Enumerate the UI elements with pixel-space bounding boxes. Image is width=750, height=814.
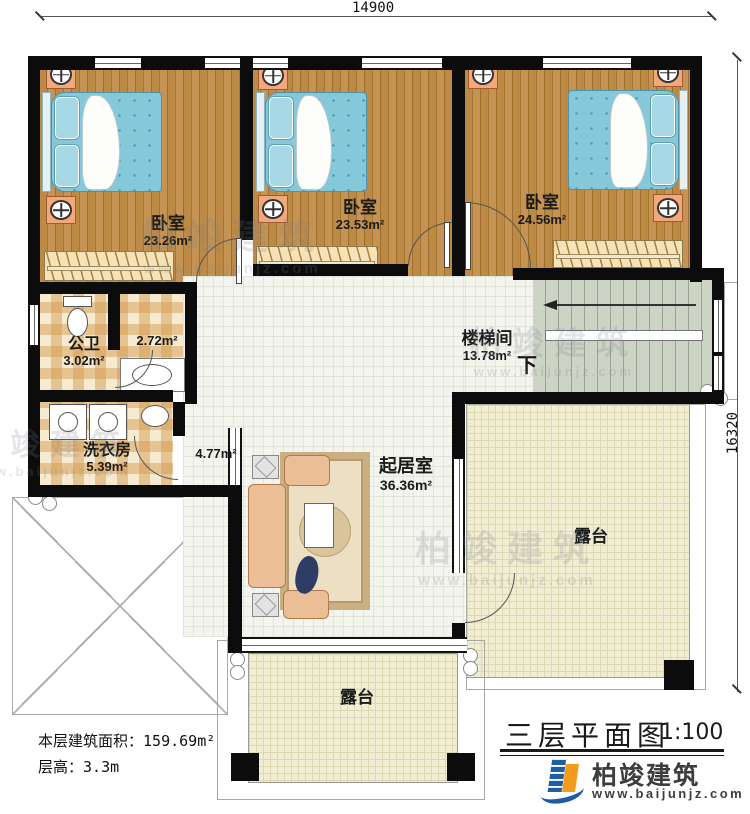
- small-room-label: 2.72m²: [136, 334, 177, 349]
- column-marker: [42, 496, 57, 511]
- right-wall: [690, 56, 702, 282]
- bedroom3-label: 卧室 24.56m²: [518, 193, 566, 227]
- top-dimension-line: [40, 16, 712, 17]
- laundry-label: 洗衣房 5.39m²: [83, 442, 131, 475]
- bed-pillow: [651, 143, 675, 185]
- floor-height-info: 层高：3.3m: [38, 756, 119, 777]
- bedroom2-bottom-wall: [253, 264, 408, 276]
- logo-swoosh: [538, 776, 586, 808]
- laundry-right-wall: [173, 402, 185, 436]
- stair-bay-bottom-wall: [452, 392, 724, 404]
- living-right-wall: [452, 404, 465, 459]
- toilet-tank: [63, 296, 92, 307]
- nightstand: [46, 196, 76, 224]
- living-right-wall-stub: [452, 623, 465, 637]
- bedroom2-label: 卧室 23.53m²: [336, 198, 384, 232]
- floor-area-info: 本层建筑面积：159.69m²: [38, 730, 215, 751]
- column: [231, 753, 259, 781]
- bed-pillow: [269, 97, 293, 139]
- drawing-title: 三层平面图: [505, 714, 670, 754]
- bedroom2-door-leaf: [444, 222, 450, 268]
- stair-window: [712, 356, 724, 390]
- right-terrace-outline: [466, 404, 706, 690]
- right-dimension-label: 16320: [725, 412, 741, 454]
- floor-plan: 14900 16320: [0, 0, 750, 814]
- stair-handrail: [545, 330, 703, 341]
- drawing-scale: 1:100: [660, 720, 723, 745]
- bed-pillow: [55, 145, 79, 187]
- laundry-top-wall: [40, 390, 173, 402]
- nightstand: [653, 194, 683, 222]
- wardrobe: [44, 251, 174, 281]
- bed-pillow: [651, 95, 675, 137]
- bedroom3-door-leaf: [465, 202, 471, 270]
- stair-top-wall: [513, 268, 724, 280]
- bed-headboard: [679, 90, 688, 190]
- column: [447, 753, 475, 781]
- right-dimension-line: [737, 60, 738, 692]
- laundry-sink-icon: [141, 405, 169, 427]
- corridor-label: 4.77m²: [195, 447, 236, 462]
- bed-pillow: [55, 97, 79, 139]
- column-marker: [463, 661, 478, 676]
- right-terrace-label: 露台: [574, 527, 608, 547]
- bed-headboard: [256, 92, 265, 192]
- bedroom2-window: [362, 56, 442, 70]
- floor-area-value: 159.69m²: [143, 732, 215, 750]
- stair-window: [712, 300, 724, 352]
- title-rule-thick: [500, 749, 724, 752]
- small-room-right-wall: [185, 294, 197, 404]
- lamp-icon: [50, 200, 72, 220]
- top-dimension-label: 14900: [352, 0, 394, 16]
- stair-direction-line: [556, 304, 696, 306]
- side-table: [252, 455, 279, 479]
- armchair: [283, 590, 329, 619]
- bedroom1-window: [205, 56, 240, 70]
- bathroom-label: 公卫 3.02m²: [63, 336, 104, 369]
- bedroom1-bottom-wall: [28, 282, 197, 294]
- stairwell-label: 楼梯间 13.78m²: [462, 329, 513, 363]
- bath-divider-wall: [108, 294, 120, 350]
- bedroom1-door-leaf: [236, 238, 242, 284]
- bedroom3-window: [543, 56, 631, 70]
- living-terrace-window: [452, 459, 465, 573]
- armchair: [284, 455, 330, 486]
- sofa: [248, 484, 286, 588]
- bed-pillow: [269, 145, 293, 187]
- washer-door: [98, 412, 118, 432]
- laundry-bottom-wall: [28, 485, 228, 497]
- bedroom2-window: [253, 56, 288, 70]
- toilet-icon: [67, 308, 88, 337]
- brand-logo-icon: [540, 756, 586, 800]
- living-label: 起居室 36.36m²: [379, 456, 433, 493]
- nightstand: [258, 195, 288, 223]
- bedroom-divider-wall: [452, 56, 465, 276]
- bathroom-window: [28, 305, 40, 345]
- lamp-icon: [262, 199, 284, 219]
- floor-height-label: 层高：: [38, 759, 83, 776]
- living-terrace-glazing: [242, 637, 467, 653]
- lamp-icon: [657, 198, 679, 218]
- washer-door: [58, 412, 78, 432]
- living-left-wall: [228, 485, 242, 653]
- bedroom1-window: [95, 56, 141, 70]
- stair-bay-sill: [724, 282, 738, 400]
- bedroom1-label: 卧室 23.26m²: [144, 214, 192, 248]
- stair-down-label: 下: [517, 355, 537, 378]
- bed-headboard: [42, 92, 51, 192]
- left-wall: [28, 56, 40, 497]
- stair-direction-arrow: [543, 300, 557, 310]
- floor-height-value: 3.3m: [83, 758, 119, 776]
- coffee-table: [304, 503, 334, 548]
- column: [664, 660, 694, 690]
- column-marker: [230, 665, 245, 680]
- floor-area-label: 本层建筑面积：: [38, 733, 143, 750]
- side-table: [252, 593, 279, 617]
- bedroom-divider-wall: [240, 56, 253, 240]
- brand-url: www.baijunjz.com: [592, 786, 744, 801]
- wardrobe: [553, 240, 683, 268]
- bottom-terrace-label: 露台: [340, 688, 374, 708]
